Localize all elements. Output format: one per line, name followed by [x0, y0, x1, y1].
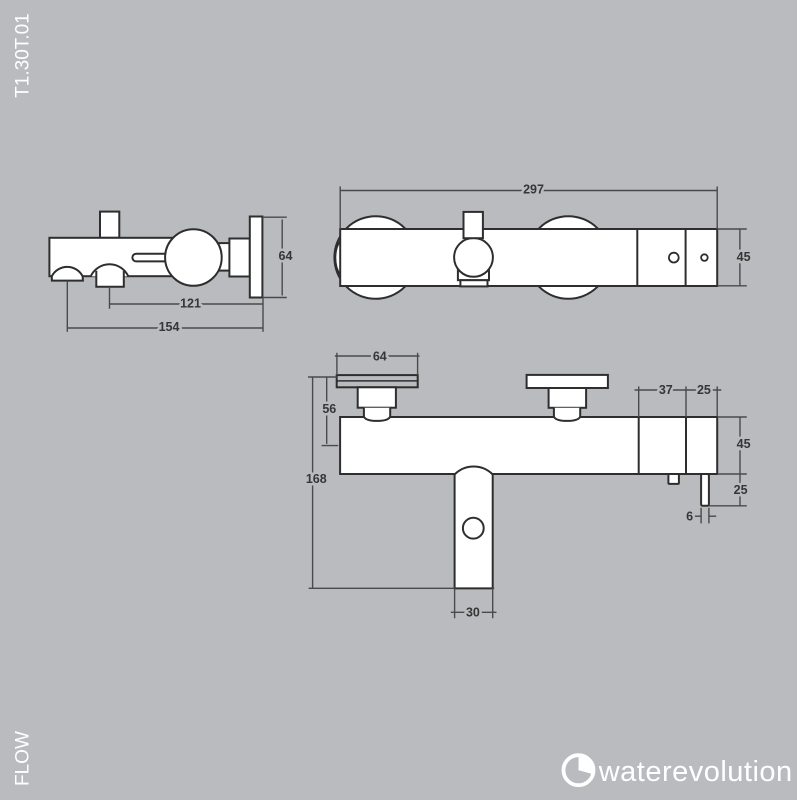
svg-text:45: 45 — [737, 437, 751, 451]
svg-text:154: 154 — [159, 320, 180, 334]
svg-text:64: 64 — [373, 349, 387, 363]
svg-text:64: 64 — [279, 249, 293, 263]
svg-text:T1.30T.01: T1.30T.01 — [13, 13, 34, 98]
svg-text:waterevolution: waterevolution — [598, 756, 793, 788]
svg-text:37: 37 — [659, 383, 673, 397]
svg-text:56: 56 — [322, 402, 336, 416]
svg-text:297: 297 — [523, 182, 544, 196]
svg-text:168: 168 — [306, 472, 327, 486]
svg-text:25: 25 — [697, 383, 711, 397]
svg-text:30: 30 — [466, 605, 480, 619]
svg-text:121: 121 — [180, 296, 201, 310]
svg-text:45: 45 — [737, 250, 751, 264]
svg-text:25: 25 — [734, 483, 748, 497]
svg-text:6: 6 — [686, 510, 693, 524]
svg-text:FLOW: FLOW — [13, 731, 34, 786]
